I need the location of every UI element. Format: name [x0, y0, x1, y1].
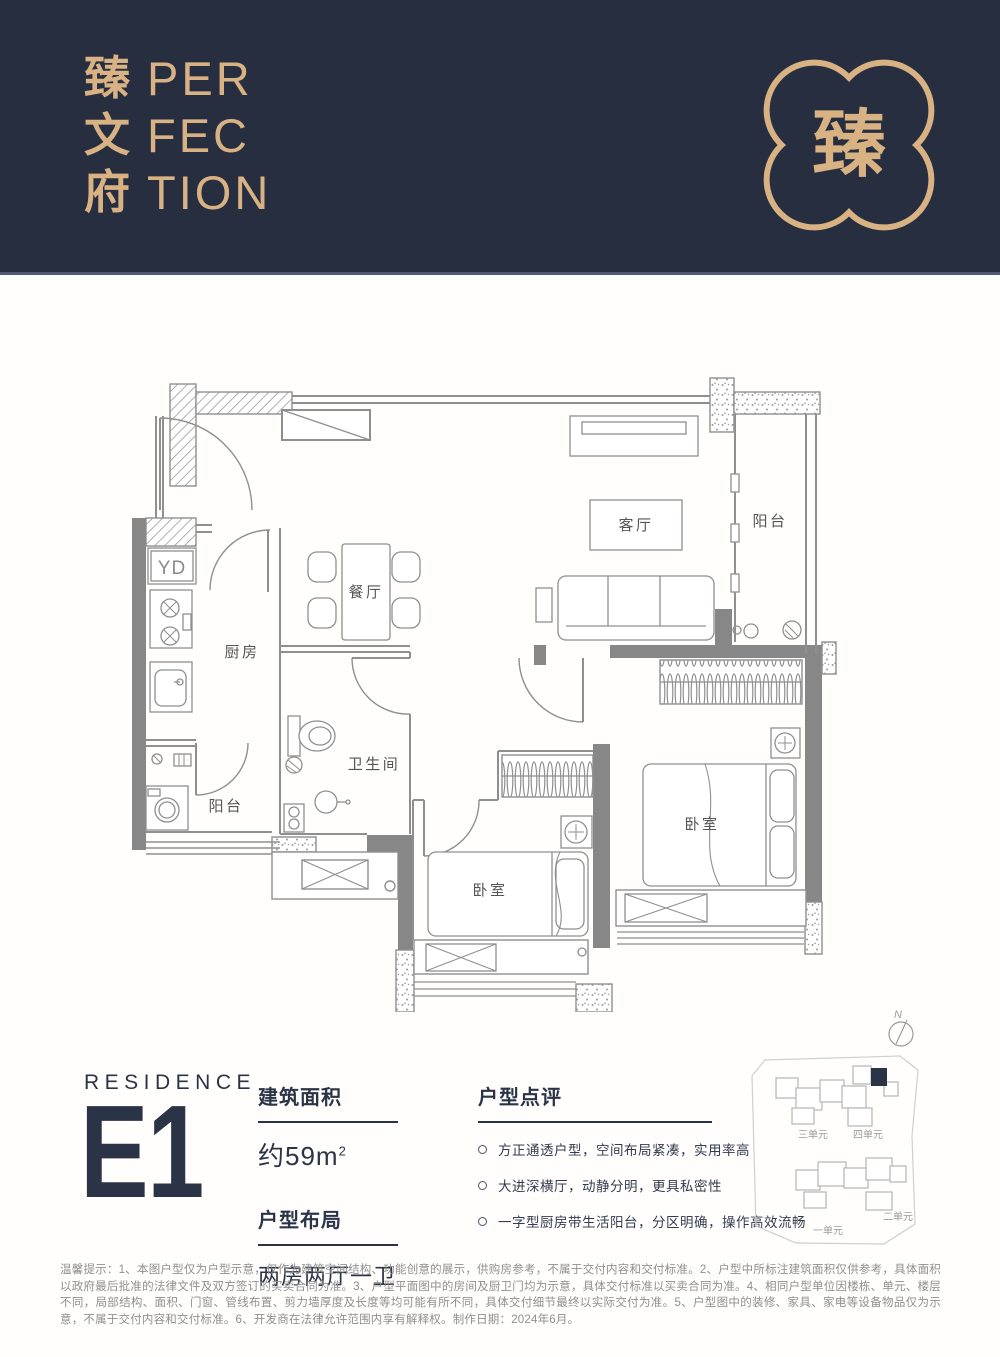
layout-title: 户型布局	[258, 1204, 398, 1246]
brand-char: 文	[84, 107, 131, 164]
north-label: N	[894, 1009, 902, 1021]
area-number: 约59m	[258, 1141, 339, 1171]
review-title: 户型点评	[478, 1081, 712, 1123]
unit-4-label: 四单元	[853, 1129, 883, 1141]
label-living-room: 客厅	[618, 517, 653, 534]
review-text: 方正通透户型，空间布局紧凑，实用率高	[498, 1139, 750, 1159]
brand-seal-icon: 臻	[762, 58, 936, 232]
area-title: 建筑面积	[258, 1081, 398, 1123]
header-band: 臻 文 府 PER FEC TION 臻	[0, 0, 1000, 275]
unit-code: E1	[80, 1078, 203, 1226]
brand-latin-line: PER	[147, 50, 271, 107]
brand-lockup: 臻 文 府 PER FEC TION	[84, 50, 271, 221]
disclaimer-text: 温馨提示：1、本图户型仅为户型示意，仅作为建筑空间结构、功能创意的展示，供购房参…	[60, 1262, 941, 1328]
label-bedroom-1: 卧室	[472, 882, 507, 899]
unit-3-label: 三单元	[798, 1129, 828, 1141]
compass-icon: N	[889, 1009, 913, 1046]
brand-char: 臻	[84, 50, 131, 107]
review-column: 户型点评 方正通透户型，空间布局紧凑，实用率高 大进深横厅，动静分明，更具私密性…	[478, 1081, 740, 1231]
brand-latin-line: FEC	[147, 107, 271, 164]
label-kitchen: 厨房	[224, 644, 259, 661]
label-dining-room: 餐厅	[348, 584, 383, 601]
review-item: 一字型厨房带生活阳台，分区明确，操作高效流畅	[478, 1211, 740, 1231]
brochure-page: 臻 文 府 PER FEC TION 臻	[0, 0, 1000, 1357]
highlighted-unit	[871, 1068, 887, 1086]
brand-latin-line: TION	[147, 164, 271, 221]
bullet-ring-icon	[478, 1217, 487, 1226]
brand-latin-name: PER FEC TION	[147, 50, 271, 221]
floorplan: 客厅 阳台 餐厅 厨房 卫生间 阳台 卧室 卧室 YD	[130, 362, 870, 1012]
review-item: 方正通透户型，空间布局紧凑，实用率高	[478, 1139, 740, 1159]
area-sup: 2	[339, 1143, 347, 1158]
brand-chinese-name: 臻 文 府	[84, 50, 131, 221]
review-item: 大进深横厅，动静分明，更具私密性	[478, 1175, 740, 1195]
label-balcony-right: 阳台	[752, 513, 787, 530]
building-cluster-bottom	[796, 1158, 906, 1210]
unit-2-label: 二单元	[883, 1211, 913, 1223]
review-list: 方正通透户型，空间布局紧凑，实用率高 大进深横厅，动静分明，更具私密性 一字型厨…	[478, 1139, 740, 1231]
bullet-ring-icon	[478, 1181, 487, 1190]
unit-1-label: 一单元	[813, 1225, 843, 1237]
review-text: 大进深横厅，动静分明，更具私密性	[498, 1175, 722, 1195]
label-bathroom: 卫生间	[348, 756, 401, 773]
bullet-ring-icon	[478, 1145, 487, 1154]
label-duct: YD	[158, 558, 186, 579]
seal-glyph: 臻	[812, 104, 886, 186]
label-bedroom-2: 卧室	[684, 816, 719, 833]
site-map-drawing: N 三单元 四单元 一单元 二单元	[748, 1008, 998, 1252]
floorplan-drawing: 客厅 阳台 餐厅 厨房 卫生间 阳台 卧室 卧室 YD	[130, 362, 870, 1012]
area-layout-column: 建筑面积 约59m2 户型布局 两房两厅一卫	[258, 1081, 398, 1291]
area-value: 约59m2	[258, 1136, 398, 1173]
label-balcony-left: 阳台	[208, 798, 243, 815]
site-map: N 三单元 四单元 一单元 二单元	[748, 1008, 998, 1252]
brand-char: 府	[84, 164, 131, 221]
